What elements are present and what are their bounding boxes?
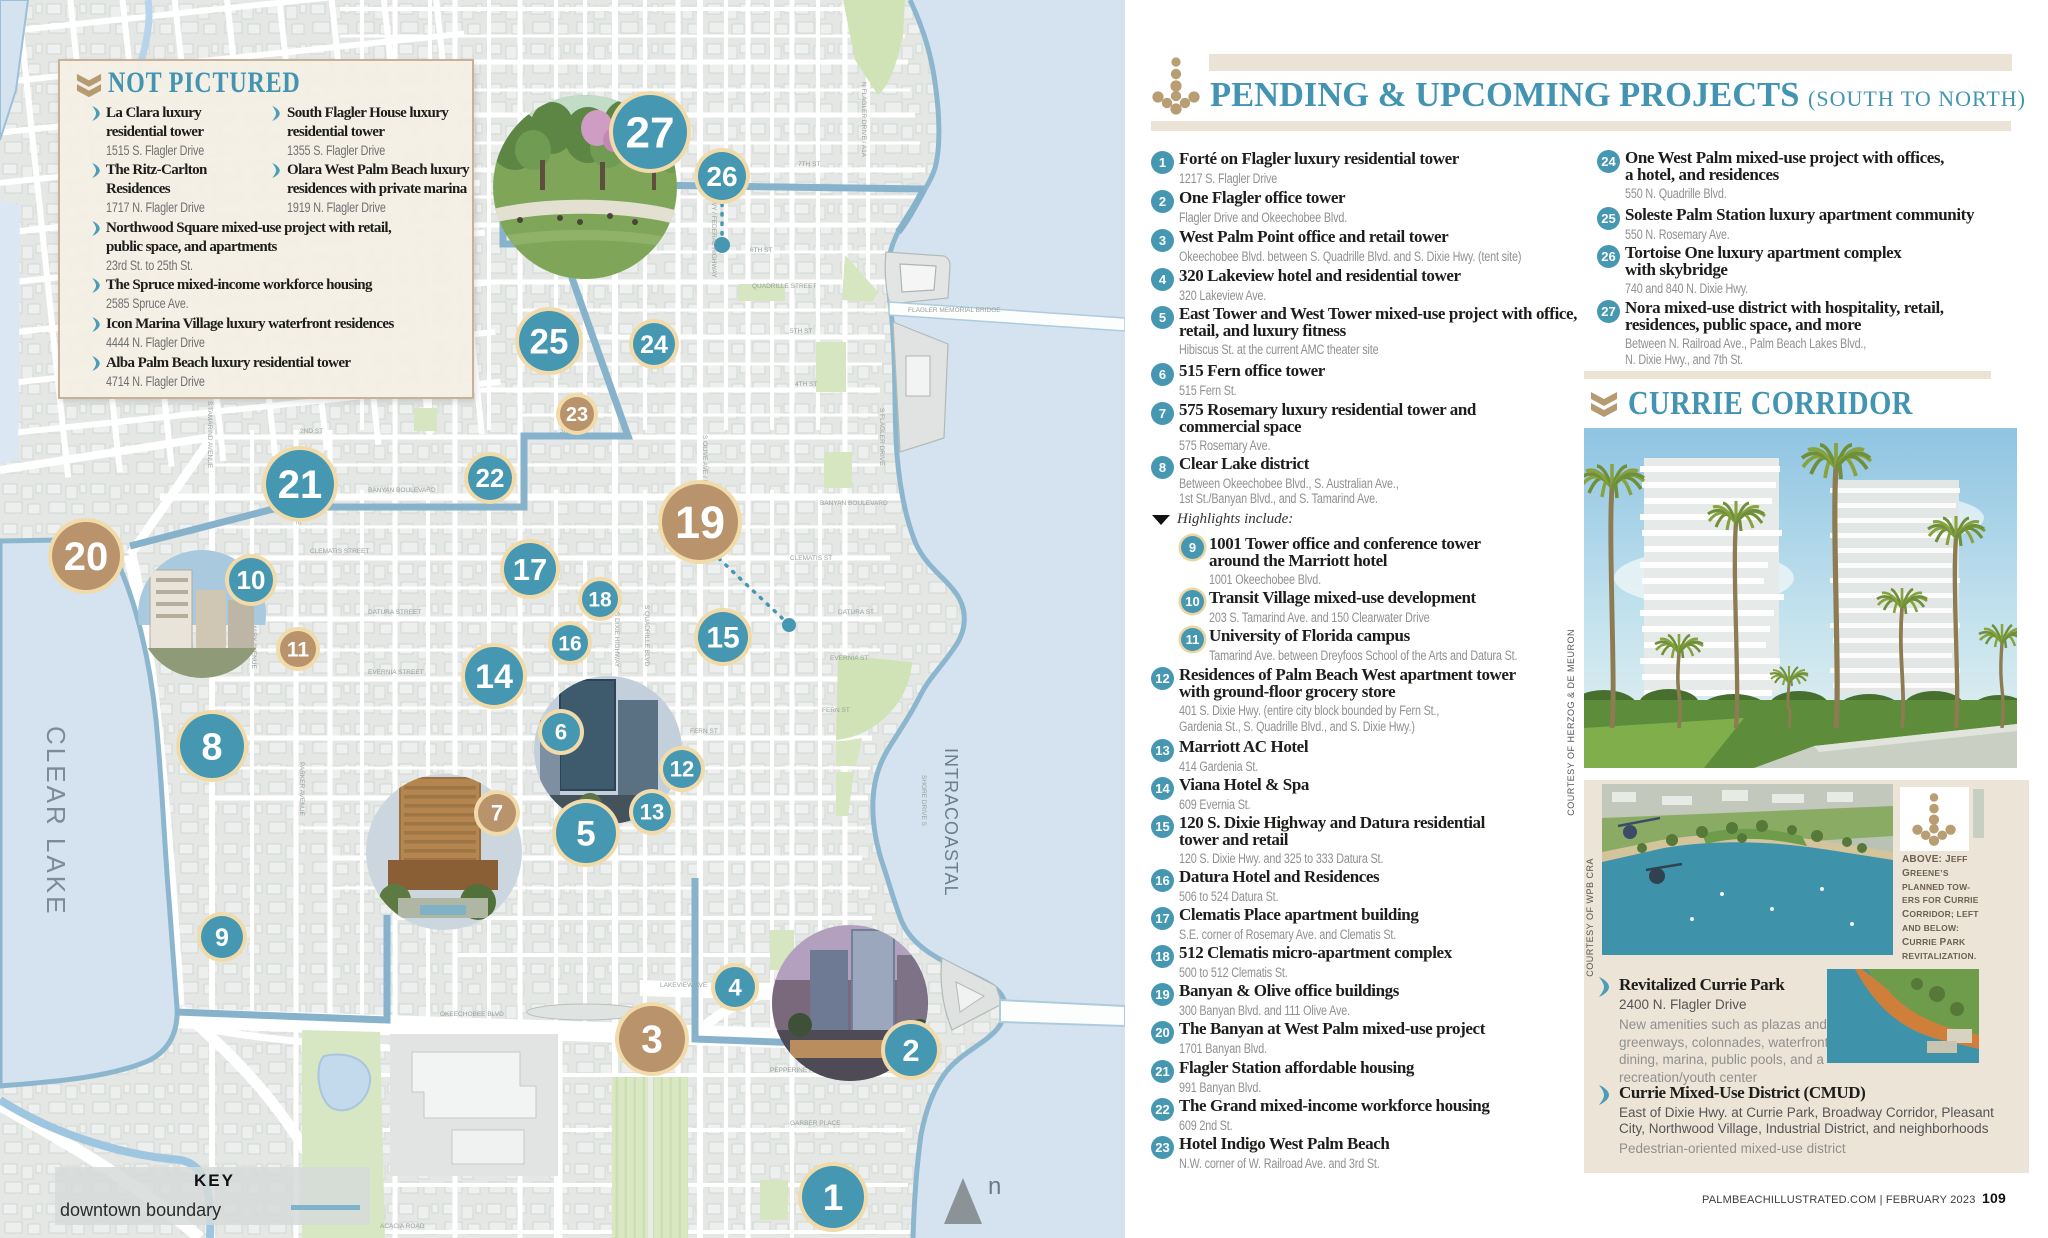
- svg-text:S DIXIE HIGHWAY: S DIXIE HIGHWAY: [613, 612, 620, 668]
- svg-text:BANYAN BOULEVARD: BANYAN BOULEVARD: [368, 487, 436, 494]
- svg-text:26: 26: [706, 161, 737, 192]
- svg-text:N FLAGLER DRIVE / A1A: N FLAGLER DRIVE / A1A: [860, 82, 867, 158]
- svg-text:24: 24: [640, 331, 668, 359]
- svg-text:LAKEVIEW AVE: LAKEVIEW AVE: [660, 982, 708, 989]
- svg-text:17: 17: [513, 552, 547, 587]
- svg-text:6: 6: [555, 720, 567, 745]
- svg-text:GARBER PLACE: GARBER PLACE: [790, 1120, 841, 1127]
- svg-text:5TH ST: 5TH ST: [790, 328, 812, 335]
- svg-text:13: 13: [640, 800, 664, 825]
- svg-text:16: 16: [558, 632, 581, 655]
- svg-text:2: 2: [902, 1033, 919, 1068]
- svg-text:OKEECHOBEE BLVD: OKEECHOBEE BLVD: [440, 1011, 504, 1018]
- svg-text:12: 12: [670, 757, 694, 782]
- svg-text:19: 19: [675, 497, 725, 548]
- svg-text:EVERNIA STREET: EVERNIA STREET: [368, 669, 424, 676]
- svg-text:S QUADRILLE BLVD: S QUADRILLE BLVD: [643, 605, 650, 667]
- svg-text:9: 9: [215, 924, 229, 952]
- svg-text:SHORE DRIVE S: SHORE DRIVE S: [920, 775, 927, 827]
- svg-text:7: 7: [491, 801, 503, 826]
- svg-text:4TH ST: 4TH ST: [795, 381, 817, 388]
- svg-text:25: 25: [530, 322, 569, 361]
- svg-text:DATURA ST: DATURA ST: [838, 609, 874, 616]
- svg-text:S TAMARIND AVENUE: S TAMARIND AVENUE: [206, 401, 213, 469]
- svg-text:PARKER AVENUE: PARKER AVENUE: [298, 762, 305, 817]
- svg-text:20: 20: [64, 535, 109, 579]
- svg-text:11: 11: [287, 638, 310, 661]
- svg-text:22: 22: [476, 463, 505, 493]
- svg-text:4: 4: [728, 974, 742, 1001]
- svg-text:BANYAN BOULEVARD: BANYAN BOULEVARD: [820, 500, 888, 507]
- svg-text:6TH ST: 6TH ST: [750, 247, 772, 254]
- svg-text:CLEMATIS STREET: CLEMATIS STREET: [310, 548, 370, 555]
- svg-text:23: 23: [566, 404, 588, 426]
- svg-text:S FLAGLER DRIVE: S FLAGLER DRIVE: [878, 408, 885, 466]
- svg-text:ACACIA ROAD: ACACIA ROAD: [380, 1223, 425, 1230]
- svg-text:FERN ST: FERN ST: [822, 707, 850, 714]
- svg-text:18: 18: [588, 588, 612, 611]
- svg-text:FERN ST: FERN ST: [690, 728, 718, 735]
- svg-text:27: 27: [626, 108, 675, 157]
- svg-text:QUADRILLE STREET: QUADRILLE STREET: [752, 283, 816, 290]
- svg-text:7TH ST: 7TH ST: [798, 161, 820, 168]
- svg-text:DATURA STREET: DATURA STREET: [368, 609, 421, 616]
- svg-text:CLEMATIS ST: CLEMATIS ST: [790, 555, 832, 562]
- svg-text:5: 5: [576, 814, 595, 853]
- svg-text:8: 8: [201, 726, 222, 768]
- svg-text:3: 3: [641, 1019, 663, 1062]
- svg-text:21: 21: [278, 463, 323, 507]
- svg-text:EVERNIA ST: EVERNIA ST: [830, 655, 868, 662]
- svg-text:14: 14: [475, 658, 513, 696]
- svg-text:15: 15: [706, 622, 739, 655]
- svg-text:2ND ST: 2ND ST: [300, 428, 323, 435]
- svg-text:FLAGLER MEMORIAL BRIDGE: FLAGLER MEMORIAL BRIDGE: [908, 307, 1001, 314]
- svg-text:10: 10: [237, 565, 266, 595]
